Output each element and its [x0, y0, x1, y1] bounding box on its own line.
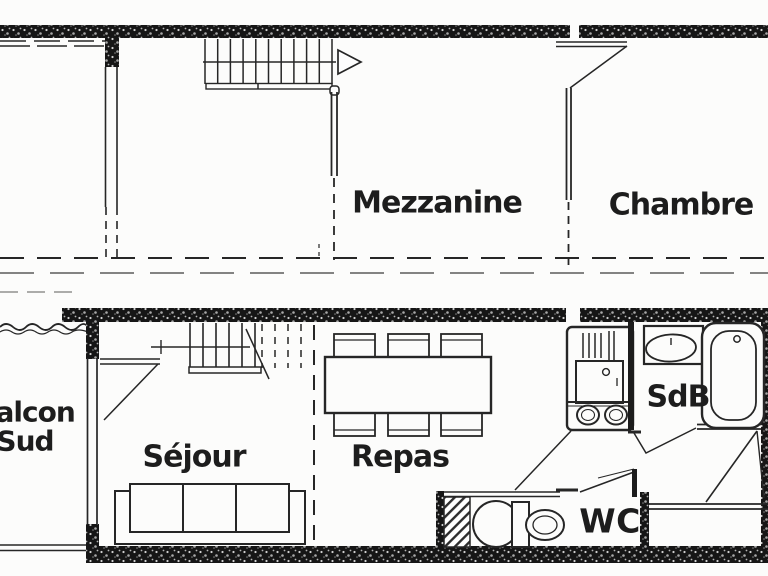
bathtub	[702, 323, 764, 428]
balcony-edge	[0, 545, 86, 551]
balcony-railing	[0, 324, 88, 334]
bathroom-sink	[644, 326, 703, 364]
wall-pillar	[105, 38, 119, 67]
room-label-mezzanine: Mezzanine	[352, 187, 522, 219]
room-label-sejour: Séjour	[143, 441, 246, 473]
room-label-balcon-line2: Sud	[0, 427, 75, 456]
room-label-balcon: Balcon Sud	[0, 398, 75, 457]
wall	[579, 25, 768, 38]
room-label-chambre: Chambre	[609, 189, 754, 221]
stair-direction-arrow	[338, 50, 361, 74]
upper-open-edge	[0, 258, 768, 292]
kitchen-unit	[567, 327, 633, 430]
kitchen-door-swing	[515, 431, 571, 490]
upper-staircase	[203, 39, 361, 95]
upper-left-window	[0, 41, 106, 46]
room-label-repas: Repas	[351, 441, 449, 473]
mezzanine-guard-wall	[319, 92, 337, 260]
wall	[580, 308, 768, 322]
wall	[0, 25, 570, 38]
upper-window-left-wall	[106, 67, 118, 258]
wc-door-swing	[580, 472, 634, 492]
room-label-wc: WC	[579, 505, 641, 540]
sofa	[115, 484, 305, 544]
wall-pillar	[86, 524, 99, 550]
wc-room	[437, 469, 634, 497]
wall-pillar	[86, 321, 99, 359]
wall	[436, 491, 444, 548]
wall-stub	[632, 469, 637, 497]
service-shaft-hatch	[444, 497, 470, 547]
floorplan-drawing	[0, 0, 768, 576]
sdb-door-swing	[634, 428, 696, 453]
room-label-sdb: SdB	[647, 381, 710, 413]
dining-table	[325, 357, 491, 413]
chambre-partition-door	[556, 42, 627, 265]
balcony-door	[100, 359, 160, 420]
toilet	[473, 501, 564, 547]
entrance-door-swing	[706, 431, 757, 502]
wall	[86, 546, 768, 563]
lower-staircase	[151, 323, 301, 379]
lower-floor	[0, 308, 768, 563]
balcony-window	[88, 358, 98, 526]
kitchen-partition-wall	[628, 322, 634, 430]
upper-floor	[0, 25, 768, 292]
room-label-balcon-line1: Balcon	[0, 398, 75, 427]
wall	[640, 492, 649, 548]
floorplan-canvas: Mezzanine Chambre Balcon Sud Séjour Repa…	[0, 0, 768, 576]
wall	[62, 308, 566, 322]
